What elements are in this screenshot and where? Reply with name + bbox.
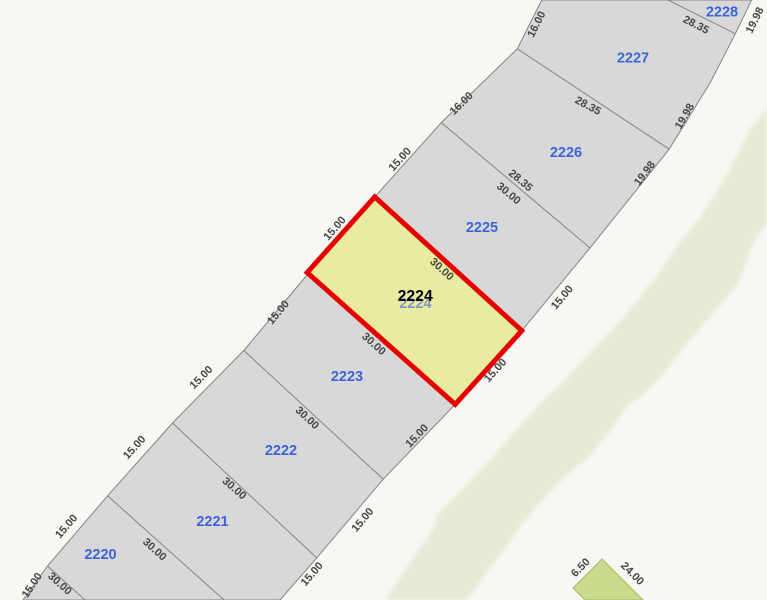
svg-text:2220: 2220 <box>84 547 116 563</box>
svg-text:2221: 2221 <box>196 514 228 530</box>
svg-text:2226: 2226 <box>550 145 582 161</box>
svg-text:2228: 2228 <box>706 5 738 21</box>
svg-text:2227: 2227 <box>617 51 649 67</box>
svg-text:2223: 2223 <box>331 369 363 385</box>
svg-text:2224: 2224 <box>398 288 433 305</box>
svg-text:2225: 2225 <box>466 220 498 236</box>
svg-text:2222: 2222 <box>265 443 297 459</box>
